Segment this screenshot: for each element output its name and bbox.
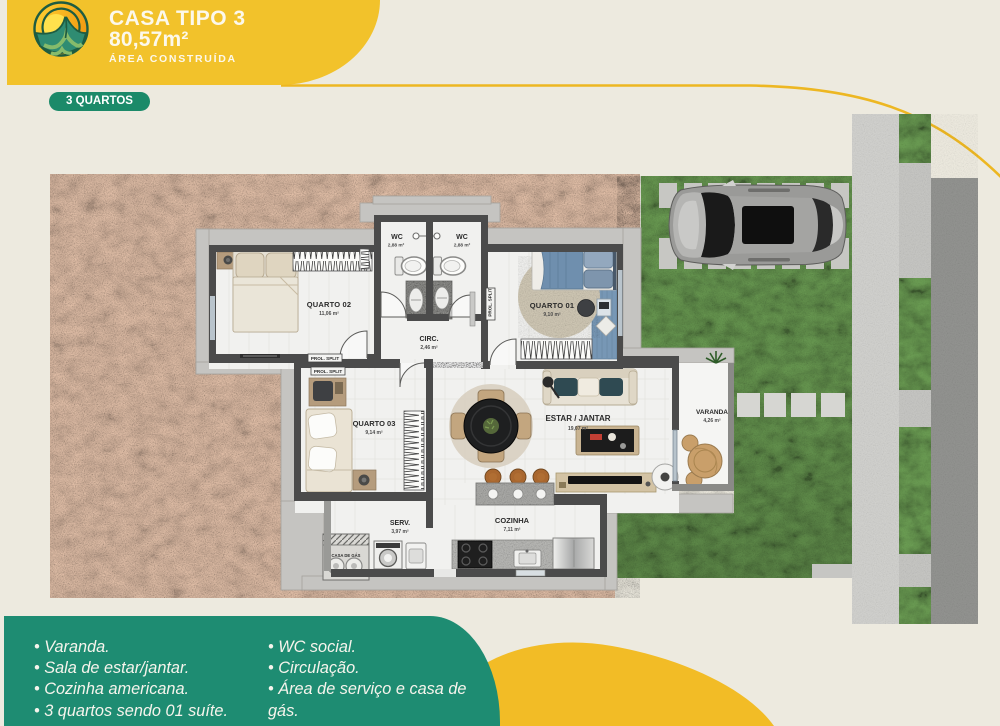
svg-text:9,14 m²: 9,14 m² [365, 430, 383, 436]
svg-text:QUARTO 03: QUARTO 03 [353, 419, 396, 428]
svg-text:SERV.: SERV. [390, 520, 410, 527]
svg-text:COZINHA: COZINHA [495, 516, 530, 525]
svg-text:7,11 m²: 7,11 m² [504, 527, 521, 533]
svg-text:2,88 m²: 2,88 m² [454, 243, 471, 249]
svg-text:WC: WC [391, 234, 403, 241]
svg-text:9,10 m²: 9,10 m² [543, 312, 561, 318]
svg-text:3,97 m²: 3,97 m² [391, 529, 409, 535]
svg-text:11,06 m²: 11,06 m² [319, 311, 339, 317]
svg-text:QUARTO 02: QUARTO 02 [307, 300, 352, 309]
svg-text:QUARTO 01: QUARTO 01 [530, 301, 575, 310]
svg-text:19,07 m²: 19,07 m² [568, 426, 588, 432]
svg-text:CIRC.: CIRC. [419, 336, 438, 343]
svg-text:4,26 m²: 4,26 m² [703, 418, 721, 424]
svg-text:PROL. SPLIT: PROL. SPLIT [314, 369, 343, 374]
svg-text:VARANDA: VARANDA [696, 409, 728, 416]
svg-text:2,46 m²: 2,46 m² [420, 345, 438, 351]
svg-text:PROL. SPLIT: PROL. SPLIT [311, 356, 340, 361]
svg-text:2,88 m²: 2,88 m² [388, 243, 405, 249]
svg-text:PROL. SPLIT: PROL. SPLIT [488, 288, 493, 317]
svg-text:WC: WC [456, 234, 468, 241]
svg-text:ESTAR / JANTAR: ESTAR / JANTAR [545, 414, 610, 423]
svg-text:CASA DE GÁS: CASA DE GÁS [332, 553, 361, 558]
